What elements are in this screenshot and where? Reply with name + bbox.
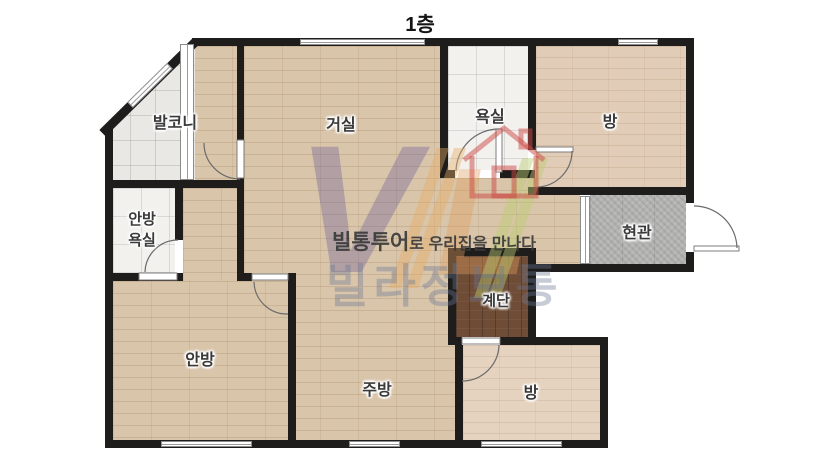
room-label-balcony: 발코니 bbox=[153, 109, 197, 133]
door-symbols bbox=[0, 0, 840, 472]
room-label-living-room: 거실 bbox=[326, 111, 355, 135]
room-label-master-bathroom: 안방 욕실 bbox=[128, 209, 156, 251]
room-label-bathroom: 욕실 bbox=[475, 103, 504, 127]
room-label-room-top-right: 방 bbox=[603, 108, 618, 132]
room-label-room-bottom-right: 방 bbox=[524, 379, 539, 403]
door-arc-room-bottom-right bbox=[462, 345, 499, 381]
room-label-kitchen: 주방 bbox=[362, 376, 391, 400]
room-label-master-bedroom: 안방 bbox=[185, 346, 214, 370]
floor-plan: 1층 bbox=[0, 0, 840, 472]
door-leaf-entrance bbox=[694, 246, 739, 251]
door-leaf-master-bath bbox=[139, 273, 177, 280]
door-arc-master bbox=[254, 282, 288, 314]
door-arc-entrance bbox=[694, 206, 737, 248]
door-arc-room-top-right bbox=[537, 151, 572, 187]
door-leaf-bathroom bbox=[496, 129, 502, 172]
door-leaf-master bbox=[252, 274, 288, 280]
room-label-entrance: 현관 bbox=[622, 219, 651, 243]
room-label-master-bathroom-line2: 욕실 bbox=[128, 230, 156, 251]
floor-title: 1층 bbox=[0, 8, 840, 37]
door-leaf-vestibule bbox=[237, 140, 244, 178]
door-arc-bathroom bbox=[456, 129, 499, 171]
door-arc-vestibule bbox=[204, 143, 240, 179]
room-label-stairs: 계단 bbox=[482, 291, 510, 312]
door-leaf-room-bottom-right bbox=[462, 338, 500, 344]
room-label-master-bathroom-line1: 안방 bbox=[128, 209, 156, 230]
door-leaf-room-top-right bbox=[536, 147, 573, 152]
